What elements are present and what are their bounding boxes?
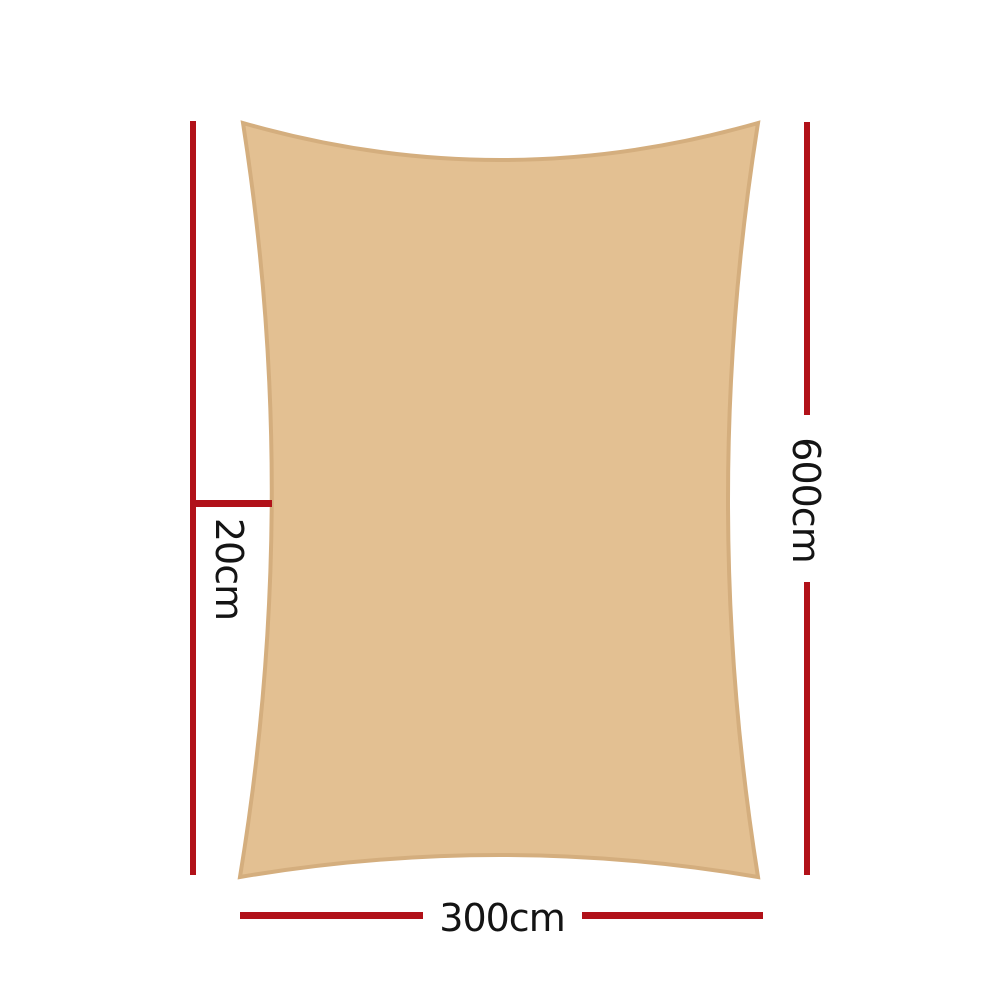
shade-sail-shape: [240, 123, 758, 877]
height-dimension-line-top: [804, 122, 810, 415]
diagram-canvas: 20cm 600cm 300cm: [0, 0, 1000, 1000]
height-dimension-label: 600cm: [787, 437, 825, 562]
offset-dimension-line: [190, 121, 196, 875]
offset-dimension-tick: [190, 500, 272, 507]
width-dimension-label: 300cm: [439, 899, 564, 937]
height-dimension-line-bottom: [804, 582, 810, 875]
width-dimension-line-left: [240, 912, 423, 919]
shade-sail-graphic: [0, 0, 1000, 1000]
offset-dimension-label: 20cm: [210, 518, 248, 620]
width-dimension-line-right: [582, 912, 763, 919]
